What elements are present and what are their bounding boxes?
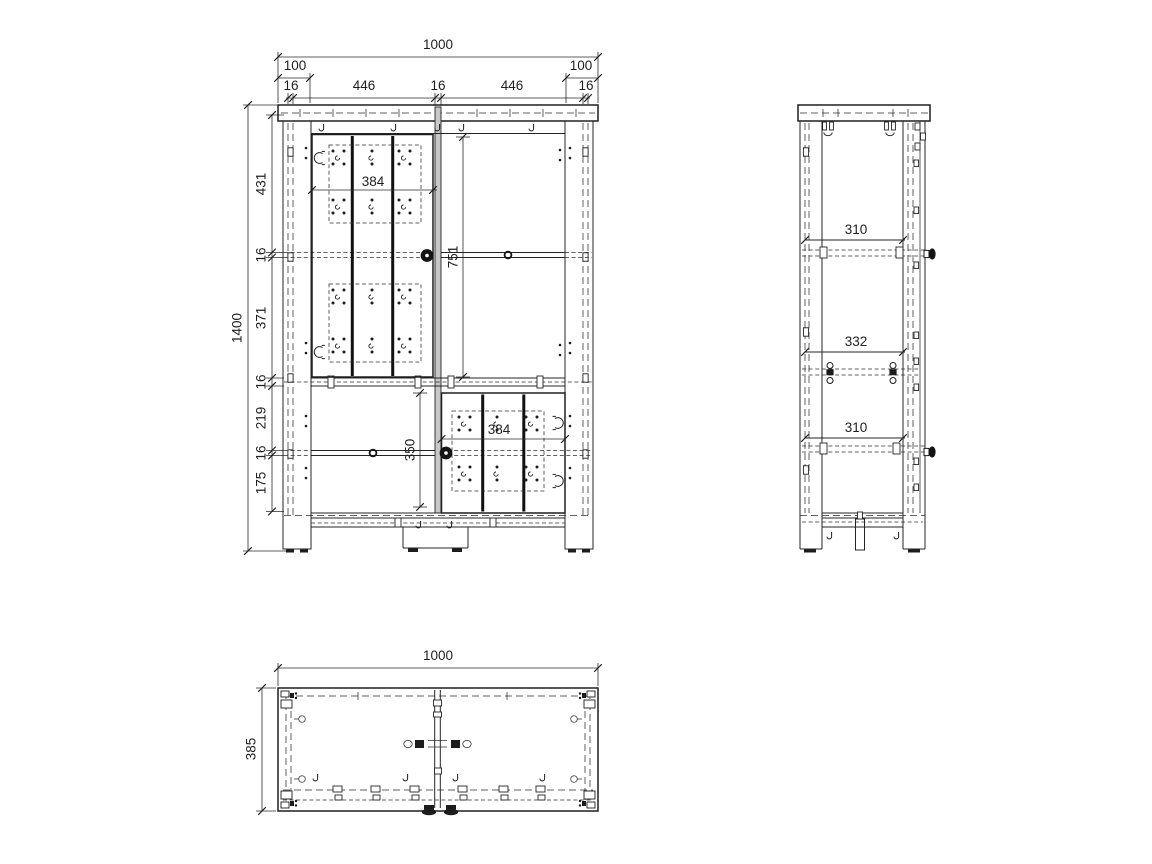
front-dim-opening-right: 446 <box>501 78 524 93</box>
side-dim-spacing-bottom: 310 <box>845 420 868 435</box>
hinge-icon <box>553 474 564 487</box>
top-view: 1000 385 <box>244 648 602 815</box>
front-view: 1000 100 100 16 446 16 446 16 1400 <box>230 37 602 555</box>
side-center-foot-fitting <box>858 512 863 519</box>
shelf-2 <box>284 376 592 388</box>
front-dim-opening-left: 446 <box>353 78 376 93</box>
front-dim-sec-upper-mid: 371 <box>254 307 269 330</box>
hinge-plate-outline-upper-2 <box>329 284 421 362</box>
front-dim-shelf-c: 16 <box>254 445 269 460</box>
foot-glide <box>444 805 458 815</box>
front-dim-panel-center: 16 <box>430 78 445 93</box>
front-dim-upper-door-width: 384 <box>362 174 385 189</box>
foot-glide <box>422 805 436 815</box>
upper-door-knob <box>421 249 434 262</box>
side-dim-spacing-middle: 332 <box>845 334 868 349</box>
front-dim-sec-bottom: 175 <box>254 472 269 495</box>
front-dim-panel-left: 16 <box>283 78 298 93</box>
side-dim-spacing-top: 310 <box>845 222 868 237</box>
front-dim-sec-lower-mid: 219 <box>254 407 269 430</box>
upper-door: 384 <box>308 135 437 378</box>
side-hardware-column <box>914 160 919 491</box>
side-bottom <box>800 512 925 553</box>
front-dim-sec-top: 431 <box>254 173 269 196</box>
hinge-icon <box>314 151 325 164</box>
technical-drawing-canvas: 1000 100 100 16 446 16 446 16 1400 <box>0 0 1152 864</box>
front-dim-shelf-b: 16 <box>254 374 269 389</box>
side-center-foot <box>856 519 865 550</box>
technical-drawing-page: 1000 100 100 16 446 16 446 16 1400 <box>0 0 1152 864</box>
top-dim-depth: 385 <box>244 738 259 761</box>
front-dim-shelf-a: 16 <box>254 247 269 262</box>
lower-door-knob <box>440 447 453 460</box>
hinge-icon <box>553 416 564 429</box>
side-shelf-1: 310 <box>801 222 935 260</box>
front-dim-panel-right: 16 <box>578 78 593 93</box>
side-lower-knob <box>924 446 936 457</box>
front-dim-right-leg: 100 <box>570 58 593 73</box>
front-dim-left-leg: 100 <box>284 58 307 73</box>
front-bottom <box>283 513 593 553</box>
top-view-outline <box>278 688 598 811</box>
left-stile <box>283 121 311 549</box>
right-stile <box>565 121 593 549</box>
front-carcass <box>278 105 598 553</box>
front-dim-lower-door-width: 384 <box>488 422 511 437</box>
side-shelf-3: 310 <box>801 420 935 458</box>
top-view-edge-fittings <box>313 774 545 800</box>
center-leg <box>403 527 468 548</box>
front-dim-total-width: 1000 <box>423 37 453 52</box>
front-dim-upper-opening-height: 751 <box>446 246 461 269</box>
side-shelf-2: 332 <box>801 334 920 384</box>
front-dim-total-height: 1400 <box>230 313 245 343</box>
front-top-dimensions: 1000 100 100 16 446 16 446 16 <box>274 37 602 106</box>
lower-door: 384 <box>438 393 569 513</box>
front-left-dimensions: 1400 431 16 371 16 219 16 175 <box>230 101 286 555</box>
top-dim-width: 1000 <box>423 648 453 663</box>
front-dim-lower-opening-height: 350 <box>403 439 418 462</box>
side-upper-knob <box>924 248 936 259</box>
hinge-icon <box>314 345 325 358</box>
side-view: 310 332 310 <box>798 105 936 553</box>
